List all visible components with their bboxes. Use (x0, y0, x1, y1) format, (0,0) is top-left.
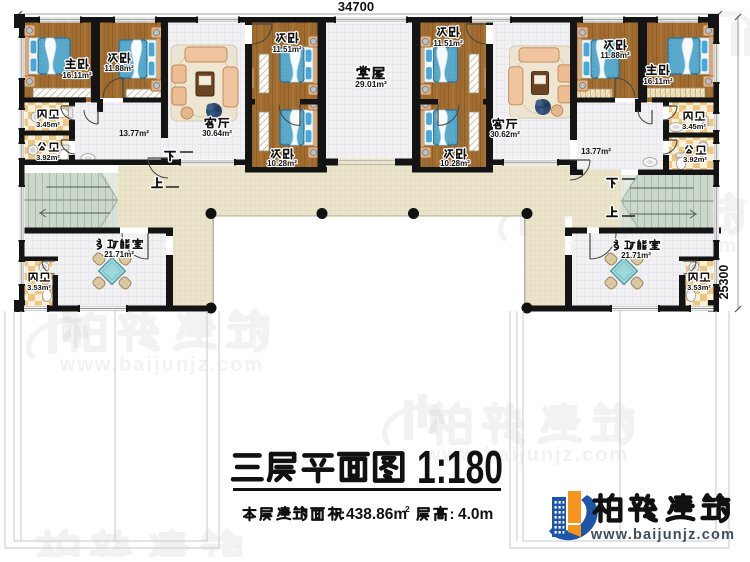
svg-text:www.baijunjz.com: www.baijunjz.com (590, 527, 735, 543)
svg-text:29.01m²: 29.01m² (355, 79, 387, 89)
svg-text:4.0m: 4.0m (458, 506, 493, 523)
svg-text:3.53m²: 3.53m² (687, 283, 711, 292)
svg-text:2: 2 (405, 504, 410, 514)
svg-text:11.51m²: 11.51m² (272, 45, 302, 54)
svg-text:3.92m²: 3.92m² (683, 155, 707, 164)
svg-text:11.51m²: 11.51m² (433, 39, 463, 48)
svg-text:www.baijunjz.com: www.baijunjz.com (59, 354, 265, 376)
svg-text:438.86m: 438.86m (346, 506, 407, 523)
svg-text:11.88m²: 11.88m² (104, 64, 134, 73)
svg-text:3.92m²: 3.92m² (36, 153, 60, 162)
svg-text:1:180: 1:180 (417, 441, 503, 493)
svg-text:3.45m²: 3.45m² (682, 122, 706, 131)
svg-text:16.11m²: 16.11m² (62, 71, 92, 80)
svg-text:13.77m²: 13.77m² (581, 147, 611, 156)
svg-text:3.53m²: 3.53m² (27, 283, 51, 292)
svg-text:13.77m²: 13.77m² (119, 129, 149, 138)
svg-text:10.28m²: 10.28m² (440, 159, 470, 168)
svg-text:21.71m²: 21.71m² (621, 251, 651, 260)
svg-text:3.45m²: 3.45m² (36, 120, 60, 129)
svg-text:16.11m²: 16.11m² (643, 77, 673, 86)
svg-text:25300: 25300 (717, 265, 731, 300)
svg-text:34700: 34700 (338, 0, 374, 14)
svg-text:10.28m²: 10.28m² (267, 159, 297, 168)
svg-text:11.88m²: 11.88m² (600, 51, 630, 60)
svg-text:21.71m²: 21.71m² (104, 250, 134, 259)
svg-text::: : (450, 506, 455, 523)
svg-text:30.64m²: 30.64m² (202, 129, 232, 138)
svg-text:30.62m²: 30.62m² (490, 130, 520, 139)
svg-text::: : (341, 506, 346, 523)
